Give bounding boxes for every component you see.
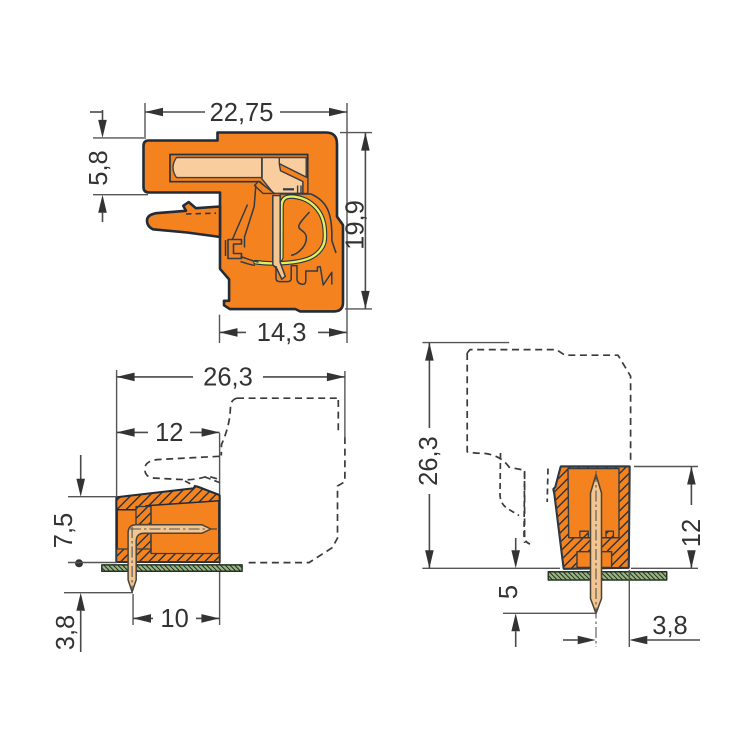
svg-text:3,8: 3,8: [52, 615, 80, 650]
svg-text:5: 5: [495, 585, 523, 599]
svg-text:26,3: 26,3: [203, 364, 253, 392]
svg-text:19,9: 19,9: [342, 200, 370, 250]
svg-text:5,8: 5,8: [85, 150, 113, 185]
svg-text:14,3: 14,3: [257, 319, 307, 347]
svg-text:10: 10: [160, 605, 188, 633]
svg-text:3,8: 3,8: [652, 612, 687, 640]
svg-text:12: 12: [678, 519, 706, 547]
svg-text:12: 12: [155, 419, 183, 447]
svg-text:7,5: 7,5: [50, 513, 78, 548]
svg-text:22,75: 22,75: [210, 99, 274, 127]
svg-text:26,3: 26,3: [415, 436, 443, 486]
